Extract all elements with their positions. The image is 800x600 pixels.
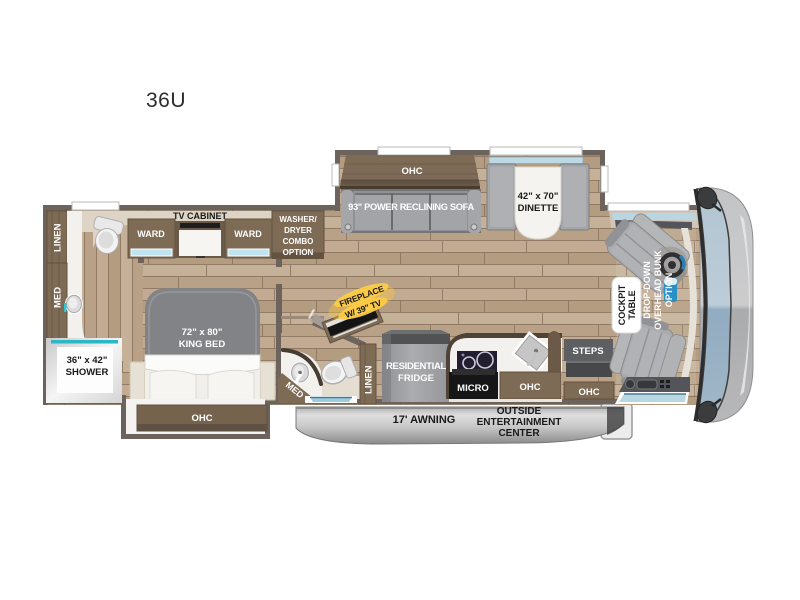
svg-text:DRYER: DRYER [284, 226, 312, 235]
svg-text:OHC: OHC [519, 382, 540, 393]
svg-text:TV CABINET: TV CABINET [173, 211, 228, 221]
svg-text:LINEN: LINEN [53, 223, 64, 252]
svg-text:OHC: OHC [191, 413, 212, 424]
svg-text:OVERHEAD BUNK: OVERHEAD BUNK [653, 250, 663, 330]
svg-text:CENTER: CENTER [498, 428, 540, 439]
svg-text:DINETTE: DINETTE [518, 203, 559, 214]
svg-text:OHC: OHC [401, 166, 422, 177]
svg-text:DROP-DOWN: DROP-DOWN [642, 261, 652, 319]
svg-text:OPTION: OPTION [664, 273, 674, 308]
svg-text:COCKPIT: COCKPIT [617, 284, 627, 325]
svg-text:WARD: WARD [234, 229, 262, 239]
svg-text:42" x 70": 42" x 70" [518, 191, 559, 202]
svg-text:WASHER/: WASHER/ [279, 215, 317, 224]
svg-text:WARD: WARD [137, 229, 165, 239]
svg-text:STEPS: STEPS [572, 346, 603, 357]
svg-text:MED: MED [53, 287, 64, 308]
svg-text:93" POWER RECLINING SOFA: 93" POWER RECLINING SOFA [348, 202, 474, 212]
svg-text:72" x 80": 72" x 80" [182, 327, 223, 338]
svg-text:36U: 36U [146, 89, 186, 112]
svg-text:FRIDGE: FRIDGE [398, 373, 434, 384]
svg-text:17' AWNING: 17' AWNING [393, 414, 456, 426]
svg-text:KING BED: KING BED [179, 339, 226, 350]
svg-text:LINEN: LINEN [364, 365, 375, 394]
svg-text:RESIDENTIAL: RESIDENTIAL [386, 361, 447, 372]
svg-text:OHC: OHC [578, 387, 599, 398]
svg-text:TABLE: TABLE [627, 290, 637, 319]
svg-text:ENTERTAINMENT: ENTERTAINMENT [477, 417, 562, 428]
svg-text:OPTION: OPTION [283, 248, 314, 257]
svg-text:MICRO: MICRO [457, 383, 489, 394]
svg-text:COMBO: COMBO [283, 237, 314, 246]
svg-text:OUTSIDE: OUTSIDE [497, 406, 542, 417]
svg-text:SHOWER: SHOWER [66, 367, 109, 378]
svg-text:36" x 42": 36" x 42" [67, 355, 108, 366]
